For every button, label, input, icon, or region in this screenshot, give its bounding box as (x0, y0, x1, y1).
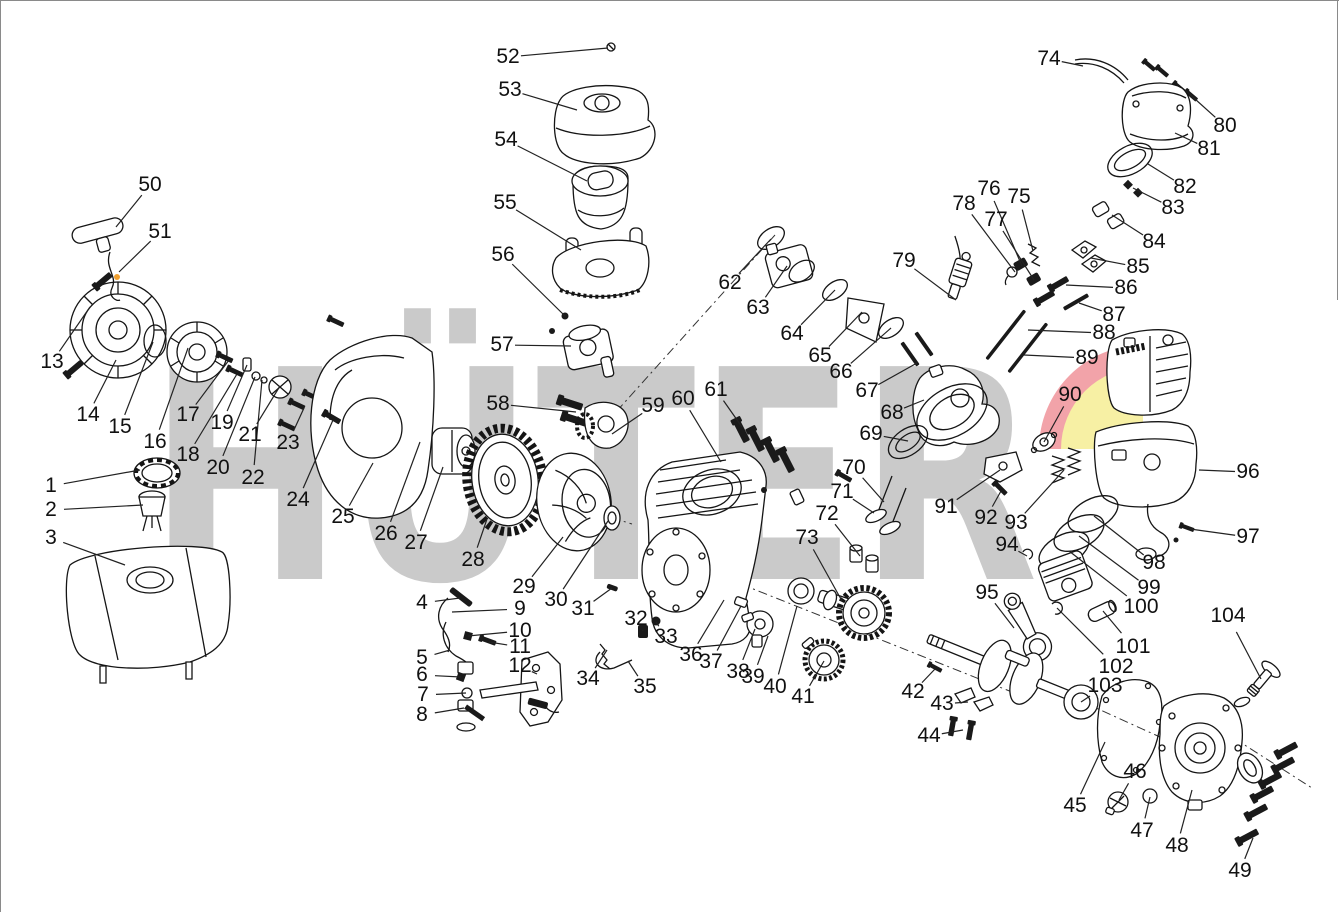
leader-line-5 (434, 650, 450, 654)
part-label-23: 23 (276, 431, 299, 455)
part-label-97: 97 (1236, 525, 1259, 549)
part-label-32: 32 (624, 607, 647, 631)
part-label-35: 35 (633, 675, 656, 699)
leader-line-10 (468, 632, 507, 636)
leader-line-58 (511, 405, 576, 412)
part-label-37: 37 (699, 650, 722, 674)
leader-line-84 (1112, 215, 1143, 235)
leader-line-63 (765, 266, 787, 297)
leader-line-11 (489, 642, 507, 645)
part-label-25: 25 (331, 505, 354, 529)
part-label-66: 66 (829, 360, 852, 384)
leader-line-69 (884, 436, 908, 441)
part-label-40: 40 (763, 675, 786, 699)
part-label-41: 41 (791, 685, 814, 709)
leader-line-44 (942, 730, 963, 734)
part-label-73: 73 (795, 526, 818, 550)
leader-line-91 (957, 470, 1000, 500)
part-label-74: 74 (1037, 47, 1060, 71)
leader-line-57 (515, 345, 571, 346)
part-label-69: 69 (859, 422, 882, 446)
part-label-67: 67 (855, 379, 878, 403)
leader-line-46 (1119, 783, 1129, 800)
leader-line-71 (853, 499, 874, 513)
leader-line-104 (1236, 632, 1261, 679)
part-label-9: 9 (514, 597, 526, 621)
leader-line-88 (1028, 330, 1091, 332)
leader-line-47 (1145, 797, 1150, 818)
part-label-80: 80 (1213, 114, 1236, 138)
leader-line-53 (522, 94, 577, 110)
part-label-89: 89 (1075, 346, 1098, 370)
part-label-90: 90 (1058, 383, 1081, 407)
part-label-88: 88 (1092, 321, 1115, 345)
part-label-26: 26 (374, 522, 397, 546)
leader-line-1 (64, 470, 140, 484)
part-label-46: 46 (1123, 760, 1146, 784)
part-label-77: 77 (984, 208, 1007, 232)
leader-line-59 (612, 413, 642, 434)
part-label-15: 15 (108, 415, 131, 439)
part-label-55: 55 (493, 191, 516, 215)
part-label-52: 52 (496, 45, 519, 69)
part-label-70: 70 (842, 456, 865, 480)
leader-line-12 (532, 672, 537, 674)
leader-line-13 (59, 307, 90, 351)
leader-line-41 (810, 661, 824, 686)
part-label-33: 33 (654, 625, 677, 649)
part-label-43: 43 (930, 692, 953, 716)
leader-line-38 (743, 629, 755, 660)
part-label-54: 54 (494, 128, 517, 152)
leader-line-30 (563, 521, 608, 589)
leader-line-48 (1180, 790, 1192, 833)
part-label-19: 19 (210, 411, 233, 435)
part-label-93: 93 (1004, 511, 1027, 535)
leader-line-61 (723, 401, 742, 427)
part-label-71: 71 (830, 480, 853, 504)
part-label-27: 27 (404, 531, 427, 555)
part-label-16: 16 (143, 430, 166, 454)
part-label-58: 58 (486, 392, 509, 416)
part-label-95: 95 (975, 581, 998, 605)
leader-line-25 (349, 463, 373, 506)
leader-line-72 (835, 524, 860, 556)
part-label-48: 48 (1165, 834, 1188, 858)
leader-line-99 (1079, 536, 1139, 580)
part-label-28: 28 (461, 548, 484, 572)
leader-line-35 (628, 661, 638, 676)
part-label-47: 47 (1130, 819, 1153, 843)
part-label-60: 60 (671, 387, 694, 411)
leader-line-93 (1025, 470, 1064, 513)
leader-line-9 (452, 610, 507, 612)
leader-line-87 (1079, 303, 1102, 311)
part-label-49: 49 (1228, 859, 1251, 883)
part-label-57: 57 (490, 333, 513, 357)
leader-line-37 (717, 606, 741, 651)
part-label-53: 53 (498, 78, 521, 102)
leader-line-45 (1081, 742, 1105, 794)
leader-line-95 (995, 603, 1014, 628)
part-label-2: 2 (45, 498, 57, 522)
leader-line-56 (512, 264, 565, 316)
leader-line-15 (125, 342, 153, 415)
leader-line-66 (851, 328, 891, 363)
part-label-21: 21 (238, 423, 261, 447)
leader-line-24 (303, 420, 333, 488)
part-label-76: 76 (977, 177, 1000, 201)
leader-line-2 (64, 505, 143, 509)
leader-line-80 (1185, 90, 1215, 117)
leader-line-92 (992, 491, 1001, 507)
part-label-61: 61 (704, 378, 727, 402)
part-label-94: 94 (995, 533, 1018, 557)
part-label-3: 3 (45, 526, 57, 550)
part-label-44: 44 (917, 724, 940, 748)
part-label-72: 72 (815, 502, 838, 526)
leader-line-62 (739, 239, 771, 273)
part-label-98: 98 (1142, 551, 1165, 575)
leader-line-3 (63, 542, 125, 565)
part-label-84: 84 (1142, 230, 1165, 254)
leader-line-70 (863, 478, 884, 502)
leader-line-81 (1175, 133, 1197, 143)
part-label-63: 63 (746, 296, 769, 320)
leader-line-34 (595, 650, 607, 668)
part-label-31: 31 (571, 597, 594, 621)
leader-line-96 (1199, 470, 1235, 471)
leader-line-90 (1044, 406, 1064, 442)
part-label-24: 24 (286, 488, 309, 512)
part-label-42: 42 (901, 680, 924, 704)
leader-line-65 (829, 312, 862, 347)
leader-line-49 (1245, 838, 1253, 859)
part-label-100: 100 (1123, 595, 1158, 619)
leader-line-23 (293, 408, 304, 431)
leader-line-55 (516, 210, 581, 250)
part-label-104: 104 (1210, 604, 1245, 628)
leader-line-89 (1024, 355, 1074, 357)
part-label-18: 18 (176, 443, 199, 467)
leader-line-6 (435, 676, 461, 677)
part-label-56: 56 (491, 243, 514, 267)
part-label-8: 8 (416, 703, 428, 727)
leader-line-43 (955, 702, 968, 703)
part-label-50: 50 (138, 173, 161, 197)
leader-line-50 (116, 195, 142, 227)
leader-line-4 (435, 598, 460, 601)
leader-line-36 (698, 600, 724, 644)
leader-line-86 (1066, 285, 1113, 287)
leader-line-67 (878, 363, 917, 385)
part-label-92: 92 (974, 506, 997, 530)
part-label-81: 81 (1197, 137, 1220, 161)
part-label-14: 14 (76, 403, 99, 427)
leader-line-31 (594, 588, 612, 601)
part-label-12: 12 (508, 654, 531, 678)
leader-line-82 (1148, 164, 1174, 180)
leader-line-74 (1062, 62, 1083, 66)
part-label-22: 22 (241, 466, 264, 490)
part-label-45: 45 (1063, 794, 1086, 818)
part-label-59: 59 (641, 394, 664, 418)
part-label-83: 83 (1161, 196, 1184, 220)
part-label-51: 51 (148, 220, 171, 244)
exploded-diagram-page: HÜTER (0, 0, 1339, 912)
leader-line-54 (518, 146, 587, 181)
leader-line-52 (521, 48, 608, 56)
leader-line-101 (1103, 611, 1121, 633)
part-label-4: 4 (416, 591, 428, 615)
part-label-17: 17 (176, 403, 199, 427)
leader-line-51 (119, 241, 151, 272)
part-label-64: 64 (780, 322, 803, 346)
part-label-39: 39 (741, 665, 764, 689)
leader-line-73 (813, 549, 842, 601)
leader-line-14 (94, 360, 116, 403)
part-label-79: 79 (892, 249, 915, 273)
leader-line-85 (1091, 258, 1125, 265)
part-label-75: 75 (1007, 185, 1030, 209)
leader-line-83 (1133, 188, 1161, 202)
leader-line-39 (757, 636, 768, 665)
leader-line-60 (690, 410, 721, 462)
leader-line-94 (1018, 551, 1027, 556)
leader-line-98 (1094, 516, 1144, 555)
leader-line-64 (801, 290, 835, 325)
leader-line-27 (420, 467, 443, 531)
leader-line-8 (435, 708, 464, 713)
part-label-62: 62 (718, 271, 741, 295)
leader-line-26 (391, 442, 420, 522)
leader-line-68 (904, 400, 924, 408)
part-label-13: 13 (40, 350, 63, 374)
leader-line-29 (532, 537, 563, 577)
part-label-20: 20 (206, 456, 229, 480)
part-label-86: 86 (1114, 276, 1137, 300)
leader-line-28 (477, 519, 487, 548)
part-label-103: 103 (1087, 674, 1122, 698)
leader-line-97 (1190, 529, 1235, 535)
leader-line-7 (436, 693, 466, 694)
part-label-96: 96 (1236, 460, 1259, 484)
part-label-78: 78 (952, 192, 975, 216)
leader-line-100 (1069, 551, 1127, 596)
leader-line-75 (1022, 210, 1033, 251)
part-label-29: 29 (512, 575, 535, 599)
part-label-30: 30 (544, 588, 567, 612)
leader-line-102 (1057, 608, 1103, 654)
leader-line-17 (196, 360, 229, 405)
part-label-91: 91 (934, 495, 957, 519)
part-label-68: 68 (880, 401, 903, 425)
leader-line-40 (778, 606, 797, 674)
part-label-65: 65 (808, 344, 831, 368)
leader-line-79 (914, 269, 956, 300)
part-label-1: 1 (45, 474, 57, 498)
part-label-34: 34 (576, 667, 599, 691)
